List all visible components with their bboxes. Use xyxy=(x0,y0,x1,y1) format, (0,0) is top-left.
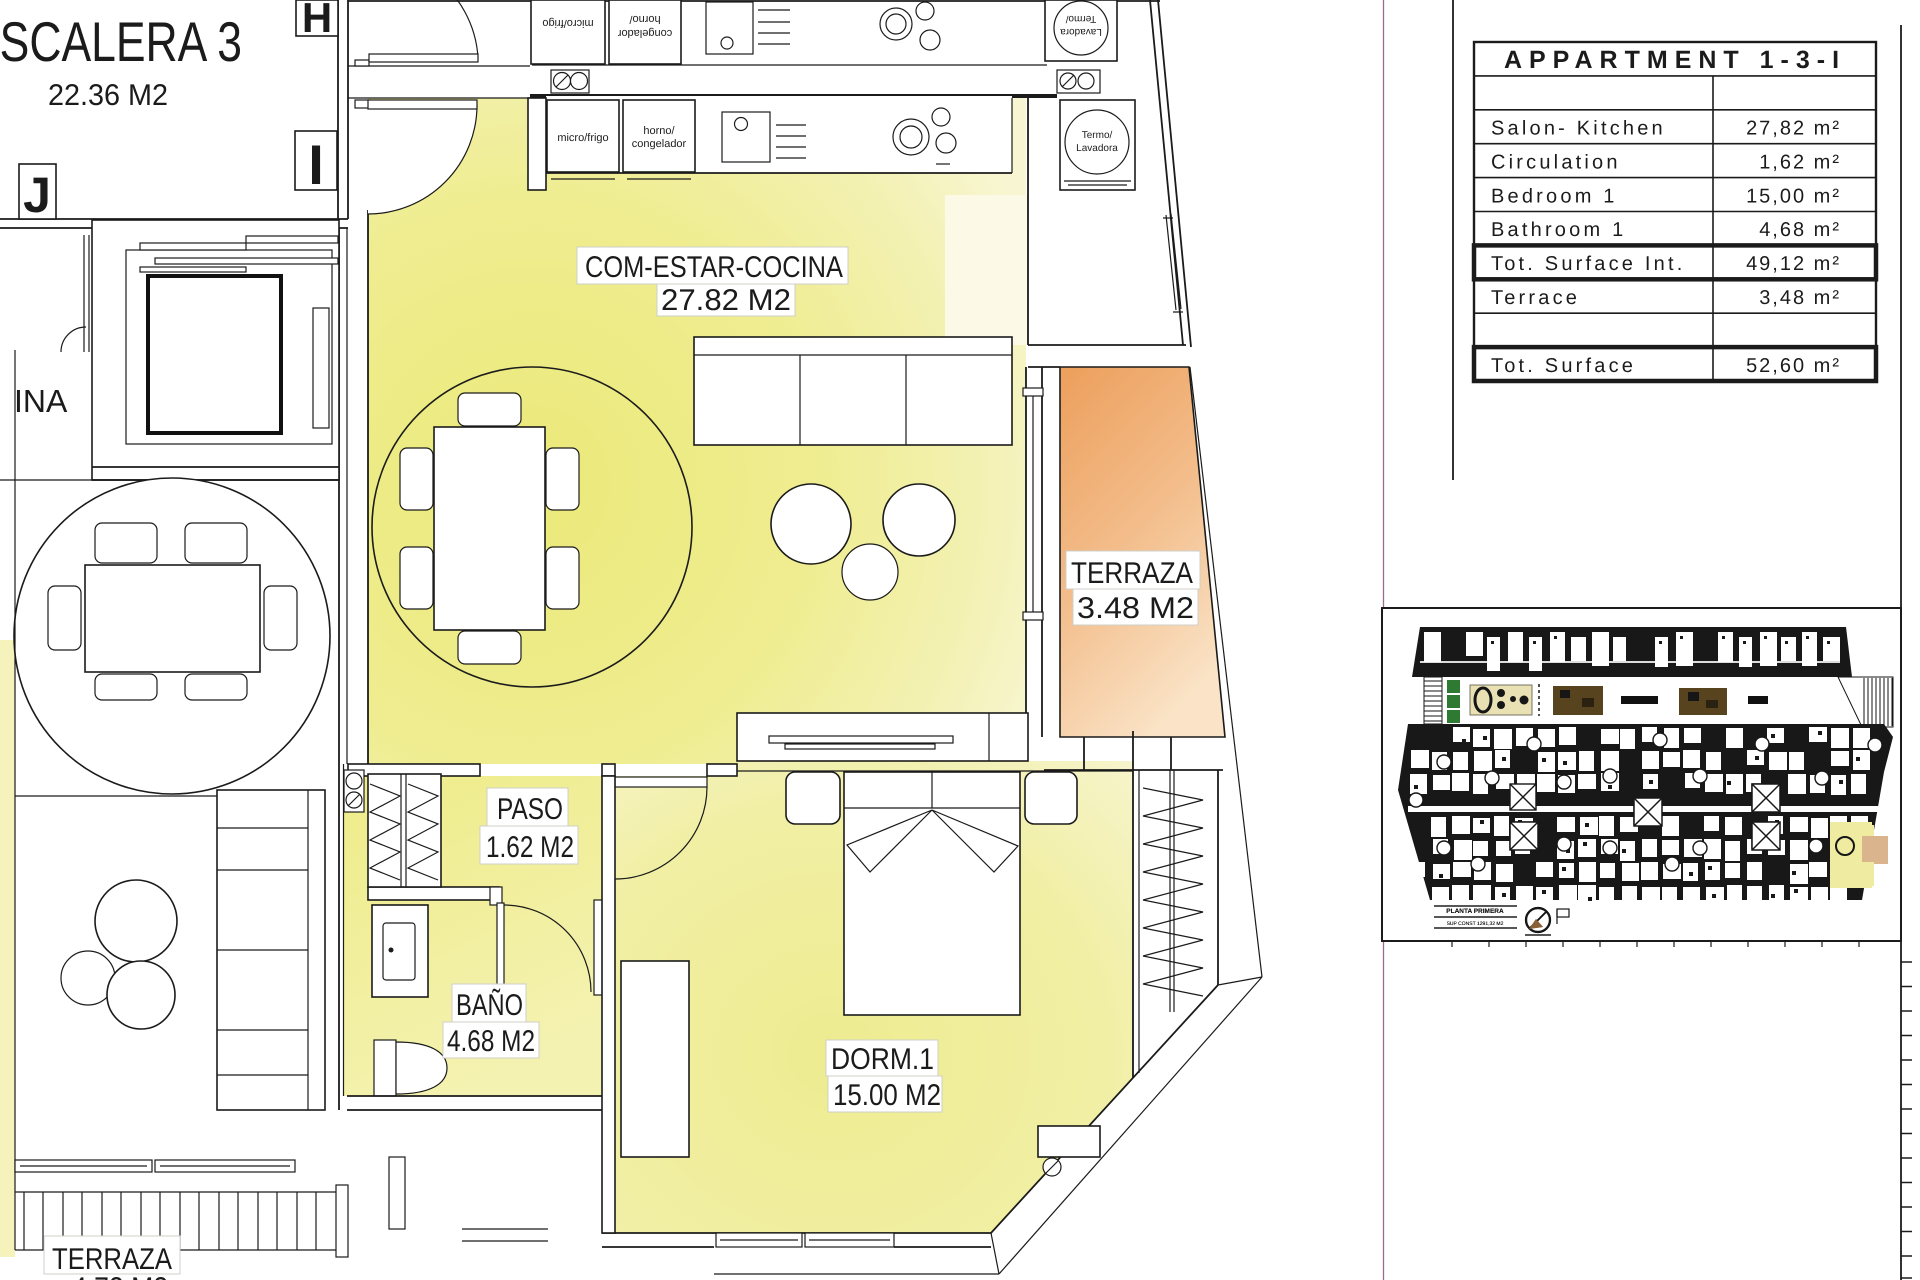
svg-text:J: J xyxy=(23,167,51,223)
svg-text:horno/: horno/ xyxy=(643,125,675,137)
svg-text:3,48 m²: 3,48 m² xyxy=(1759,287,1841,309)
svg-text:Bathroom 1: Bathroom 1 xyxy=(1491,219,1626,241)
svg-text:Tot. Surface: Tot. Surface xyxy=(1491,355,1636,377)
svg-text:Circulation: Circulation xyxy=(1491,151,1621,173)
svg-text:27.82 M2: 27.82 M2 xyxy=(661,284,791,317)
svg-text:3.48 M2: 3.48 M2 xyxy=(1077,592,1194,625)
svg-text:49,12 m²: 49,12 m² xyxy=(1746,253,1841,275)
svg-text:ESCALERA 3: ESCALERA 3 xyxy=(0,10,242,73)
svg-text:Lavadora: Lavadora xyxy=(1076,143,1118,154)
svg-text:Termo/: Termo/ xyxy=(1082,130,1113,141)
svg-text:congelador: congelador xyxy=(632,138,687,150)
svg-text:Lavadora: Lavadora xyxy=(1060,26,1102,37)
svg-text:4,68 m²: 4,68 m² xyxy=(1759,219,1841,241)
svg-text:H: H xyxy=(302,0,332,41)
svg-text:PLANTA PRIMERA: PLANTA PRIMERA xyxy=(1446,908,1504,915)
svg-text:Terrace: Terrace xyxy=(1491,287,1580,309)
svg-text:INA: INA xyxy=(14,383,68,419)
svg-text:4.68 M2: 4.68 M2 xyxy=(447,1025,535,1058)
svg-text:22.36 M2: 22.36 M2 xyxy=(48,79,168,112)
svg-text:congelador: congelador xyxy=(617,27,672,39)
svg-text:I: I xyxy=(308,133,324,196)
svg-text:TERRAZA: TERRAZA xyxy=(1071,557,1193,590)
svg-text:APPARTMENT 1-3-I: APPARTMENT 1-3-I xyxy=(1504,46,1846,74)
svg-text:PASO: PASO xyxy=(497,793,563,826)
svg-text:27,82 m²: 27,82 m² xyxy=(1746,118,1841,140)
svg-text:52,60 m²: 52,60 m² xyxy=(1746,355,1841,377)
svg-text:Bedroom 1: Bedroom 1 xyxy=(1491,185,1618,207)
svg-text:15,00 m²: 15,00 m² xyxy=(1746,185,1841,207)
svg-text:Termo/: Termo/ xyxy=(1065,13,1096,24)
svg-text:1.62 M2: 1.62 M2 xyxy=(486,831,574,864)
svg-text:BAÑO: BAÑO xyxy=(456,988,523,1022)
svg-text:DORM.1: DORM.1 xyxy=(831,1043,934,1076)
svg-text:micro/frigo: micro/frigo xyxy=(542,17,593,29)
svg-text:SUP CONST 1291,32 M2: SUP CONST 1291,32 M2 xyxy=(1447,921,1504,927)
svg-text:Tot. Surface Int.: Tot. Surface Int. xyxy=(1491,253,1685,275)
svg-text:micro/frigo: micro/frigo xyxy=(557,132,608,144)
svg-text:15.00 M2: 15.00 M2 xyxy=(833,1079,941,1112)
svg-text:4.72 M2: 4.72 M2 xyxy=(72,1272,168,1280)
svg-text:1,62 m²: 1,62 m² xyxy=(1759,151,1841,173)
svg-text:horno/: horno/ xyxy=(628,13,660,25)
svg-text:Salon- Kitchen: Salon- Kitchen xyxy=(1491,118,1666,140)
svg-text:COM-ESTAR-COCINA: COM-ESTAR-COCINA xyxy=(585,251,843,284)
